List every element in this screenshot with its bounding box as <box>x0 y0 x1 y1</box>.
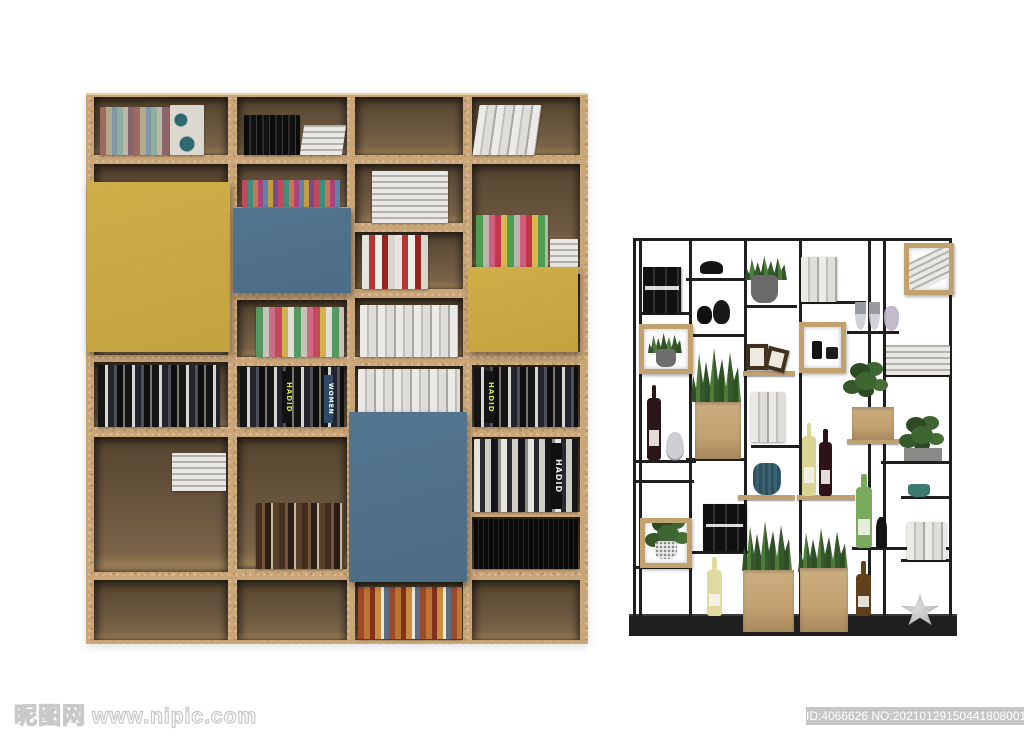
yellow-panel-left <box>87 182 230 352</box>
wood-cube-shelf <box>640 518 692 568</box>
picture-frame <box>764 346 790 373</box>
wood-shelf-bar <box>738 495 795 500</box>
book-set-black <box>474 519 578 569</box>
book-spine-hadid: HADID <box>484 371 494 423</box>
plant-pot <box>656 349 676 367</box>
wood-cube-shelf <box>799 322 846 373</box>
book-row-orange <box>358 587 462 639</box>
white-books <box>801 257 837 302</box>
book-row-white <box>360 305 458 357</box>
wood-planter-large <box>800 568 848 632</box>
teal-pot <box>908 484 930 497</box>
black-bowl <box>700 261 723 274</box>
book-row-dark <box>98 365 220 427</box>
book-stack-white <box>172 453 226 491</box>
book-spine-hadid: HADID <box>282 371 292 423</box>
black-binder-books <box>703 504 746 551</box>
book-row-pastel <box>100 107 170 155</box>
wooden-bookshelf: HADID WOMEN HADID HADID <box>86 93 588 644</box>
metal-frame-post <box>949 238 952 622</box>
book-row-white-red <box>362 235 428 289</box>
white-books <box>907 522 946 560</box>
blue-panel-small <box>233 208 351 293</box>
white-book-stack <box>886 345 950 375</box>
snake-plant <box>691 348 741 402</box>
book-row-leaning-white <box>472 105 541 155</box>
book-spine-hadid: HADID <box>550 443 562 509</box>
snake-plant <box>742 521 792 571</box>
metal-shelf-bar <box>751 445 799 448</box>
green-bottle <box>856 487 872 548</box>
metal-shelf-bar <box>686 278 746 281</box>
gray-planter <box>904 448 942 461</box>
book-row-rainbow <box>242 180 340 207</box>
magazine-stack <box>372 171 448 223</box>
metal-shelf-bar <box>745 305 797 308</box>
metal-top-bar <box>633 238 952 241</box>
metal-shelf-bar <box>689 334 744 337</box>
yellow-panel-right <box>468 267 578 352</box>
black-vase <box>713 300 730 324</box>
wood-planter <box>852 407 894 440</box>
leafy-plant <box>855 372 877 390</box>
metal-frame-post <box>633 238 636 622</box>
shelf-compartment <box>237 580 347 640</box>
brown-bottle <box>856 574 871 616</box>
wood-cube-shelf <box>904 243 954 295</box>
red-wine-bottle <box>819 442 832 496</box>
book-row-colorful <box>476 215 548 267</box>
plant-pot <box>751 275 778 303</box>
image-id-badge: ID:4066626 NO:20210129150441808001 <box>806 707 1024 725</box>
nipic-logo-text: 昵图网 <box>14 702 86 728</box>
inverted-wine-glass <box>869 302 880 330</box>
metal-shelf-bar <box>634 480 694 483</box>
shelf-compartment <box>355 97 463 155</box>
wine-bottle-dark <box>647 398 661 460</box>
wood-planter <box>695 402 741 459</box>
metal-shelf-bar <box>686 551 748 554</box>
wood-cube-shelf <box>639 324 693 374</box>
plant-pot <box>655 541 677 559</box>
black-shaker <box>876 517 887 548</box>
storage-box <box>170 105 204 155</box>
magazine-stack <box>300 125 346 155</box>
book-stack-white <box>550 239 578 267</box>
wine-glass <box>666 432 684 459</box>
blue-panel-large <box>349 412 467 582</box>
blue-vase <box>753 463 781 495</box>
book-row-black <box>244 115 300 155</box>
book-row-brown <box>256 503 344 569</box>
wood-planter-large <box>743 570 794 632</box>
metal-display-shelf <box>633 230 953 634</box>
shelf-compartment <box>94 580 228 640</box>
snake-plant <box>798 528 848 572</box>
metal-shelf-bar <box>847 331 899 334</box>
tilted-white-books <box>904 244 954 294</box>
metal-shelf-bar <box>881 461 951 464</box>
black-candle <box>812 341 822 359</box>
wood-shelf-bar <box>743 371 795 376</box>
black-vase <box>697 306 712 324</box>
white-wine-bottle <box>707 570 722 616</box>
book-spine-women: WOMEN <box>324 375 333 423</box>
shelf-compartment <box>472 580 580 640</box>
nipic-watermark: 昵图网www.nipic.com <box>14 696 257 730</box>
black-candle <box>826 347 838 359</box>
white-wine-bottle <box>802 436 816 496</box>
glass-carafe <box>884 306 899 331</box>
book-row-colorful <box>256 307 344 357</box>
black-binder-books <box>643 267 681 313</box>
white-books <box>751 392 785 442</box>
inverted-wine-glass <box>855 302 866 330</box>
nipic-url-text: www.nipic.com <box>92 705 257 728</box>
hanging-plant <box>911 426 933 444</box>
